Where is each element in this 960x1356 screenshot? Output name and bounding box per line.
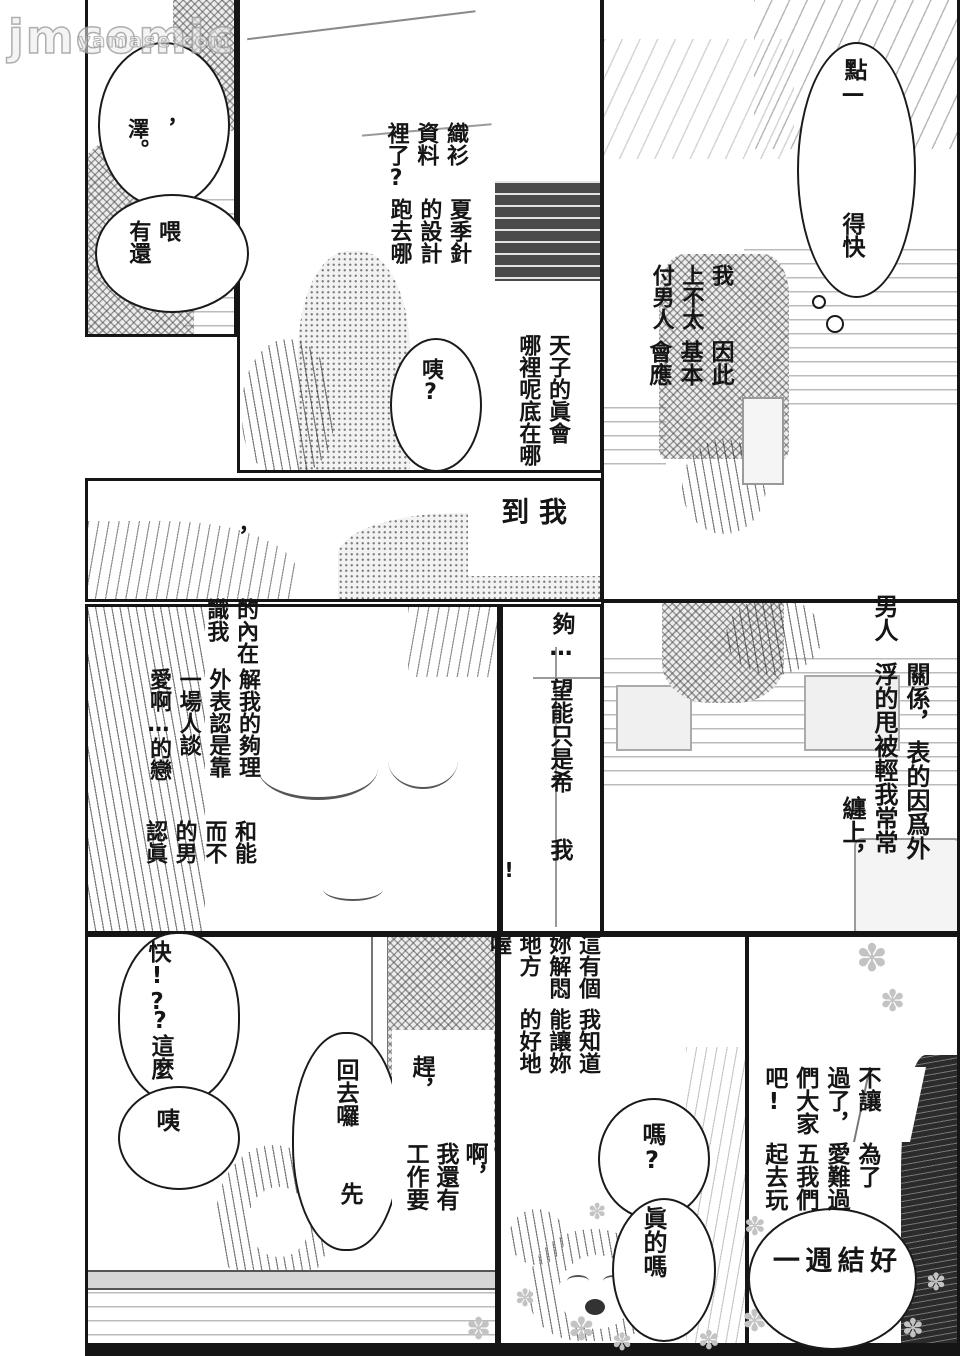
- hair-strands-art: [85, 521, 298, 602]
- narration-text: 因此 基本 會應: [640, 340, 735, 416]
- monologue-text: 纏上，: [834, 796, 868, 876]
- narration-text: 天子的眞會 哪裡呢底在哪: [504, 334, 572, 479]
- flower-motif: ✽: [902, 1314, 924, 1344]
- monologue-text: 解我的夠理 外表認是靠 一場人談 愛啊…的戀: [122, 668, 262, 813]
- thought-dot: [812, 295, 826, 309]
- manga-page: jmcomic yamase.com ， 澤。 喂 有還 織衫 資料 裡了? 夏…: [0, 0, 960, 1356]
- narration-text: 我 上不太 付男人: [645, 264, 735, 336]
- narration-text: 夏季針 的設計 跑去哪: [381, 198, 473, 276]
- speech-text: 我還有: [430, 1142, 460, 1222]
- speech-text: 這有個 妳解悶 地方喔!: [514, 933, 602, 1005]
- monologue-text: 夠…: [544, 612, 576, 672]
- ceiling-lines-art: [604, 39, 794, 159]
- speech-text: 好 結 週 一: [766, 1246, 896, 1286]
- monologue-text: 浮的甩被輕我常常: [866, 662, 900, 877]
- flower-motif: ✽: [466, 1312, 491, 1347]
- watermark-subtext: yamase.com: [78, 30, 231, 52]
- speech-text: 先: [330, 1182, 364, 1218]
- head-art: [726, 600, 822, 675]
- speech-text: 不讓 過了， 們大家 吧!: [762, 1066, 882, 1138]
- speech-text: 趕，: [404, 1055, 436, 1121]
- eyebrow-art: [388, 732, 458, 789]
- speech-text: 我 到: [500, 497, 570, 565]
- door-art: [742, 397, 784, 485]
- monologue-text: 的內在 識我: [182, 598, 260, 670]
- flower-motif: ✽: [698, 1326, 720, 1356]
- flower-motif: ✽: [515, 1284, 535, 1312]
- speech-text: 為了 愛難過 五我們 起去玩: [762, 1142, 882, 1216]
- flower-motif: ✽: [612, 1328, 632, 1356]
- speech-text: 得快: [832, 212, 866, 292]
- comma-text: ，: [222, 526, 250, 566]
- closed-eye-art: [258, 737, 378, 800]
- speech-text: 喂 有還: [126, 220, 182, 300]
- speech-text: 啊，: [459, 1142, 489, 1200]
- floor-lines-art: [88, 1292, 498, 1344]
- monologue-text: 表的因爲外: [898, 740, 932, 875]
- girl-head-art: [242, 339, 334, 473]
- mouth-art: [323, 877, 383, 901]
- monologue-text: 關係，: [898, 662, 932, 740]
- flower-motif: ✽: [880, 984, 905, 1019]
- flower-motif: ✽: [856, 936, 888, 980]
- shelf-art: [88, 1270, 498, 1290]
- speech-text: 咦: [150, 1108, 182, 1144]
- speech-text: 眞的嗎: [637, 1206, 669, 1292]
- flower-motif: ✽: [588, 1200, 606, 1225]
- speech-text: ?這麼: [143, 1008, 175, 1084]
- monologue-text: 男人: [866, 594, 900, 658]
- speech-text: ， 澤。: [122, 118, 180, 198]
- closed-eye-art: [567, 1275, 589, 1287]
- flower-motif: ✽: [568, 1310, 595, 1348]
- speech-text: 快!?: [140, 940, 172, 1006]
- monologue-text: 望能只是希: [542, 678, 574, 828]
- flower-motif: ✽: [926, 1268, 946, 1296]
- speech-text: 嗎?: [636, 1122, 668, 1186]
- narration-text: 織衫 資料 裡了?: [378, 122, 470, 198]
- monologue-text: 我: [542, 838, 574, 878]
- thought-dot: [826, 315, 844, 333]
- hair-strands-art: [408, 607, 500, 677]
- monologue-text: 和能 而不 的男 認眞: [122, 820, 258, 872]
- speech-text: 工作要: [400, 1142, 430, 1222]
- speech-text: 我知道 能讓妳 的好地: [514, 1008, 602, 1080]
- monologue-text: !: [498, 858, 522, 888]
- stairs-art: [604, 407, 666, 473]
- speech-text: 點—: [834, 58, 868, 178]
- speech-text: 回去囉: [326, 1058, 360, 1148]
- speech-text: 咦?: [413, 358, 445, 438]
- bookshelf-art: [495, 181, 603, 281]
- speech-bubble: [118, 932, 240, 1104]
